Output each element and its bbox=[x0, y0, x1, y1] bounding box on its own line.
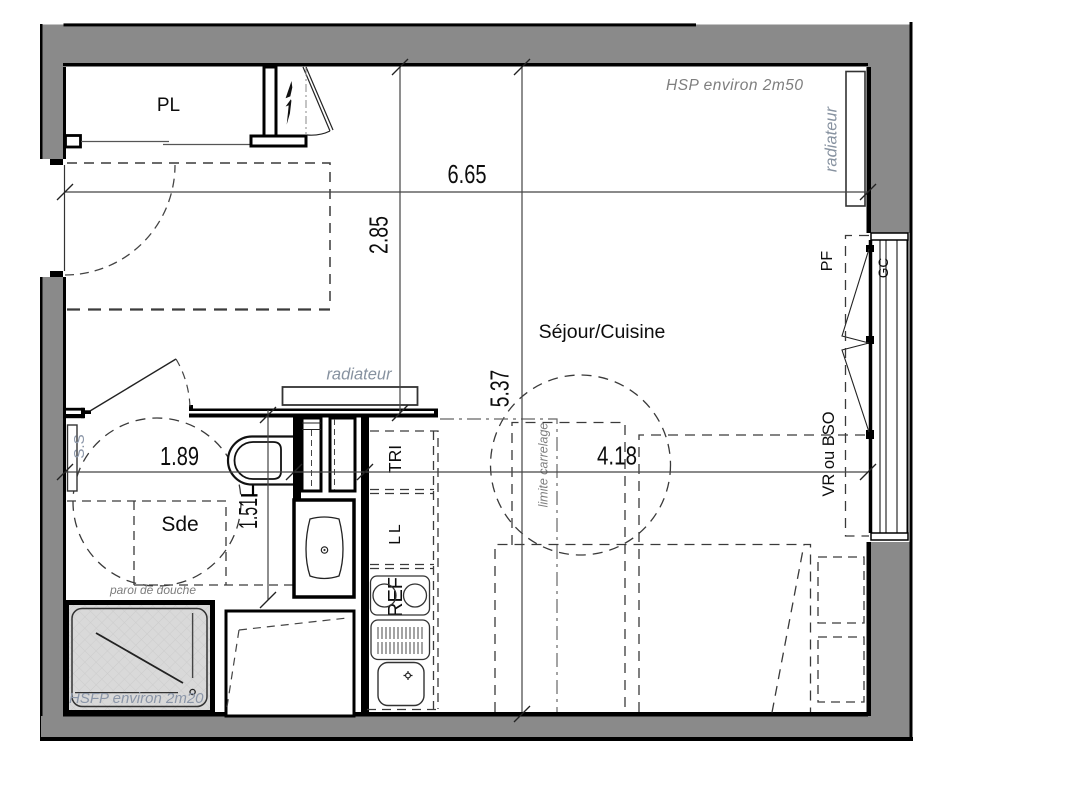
svg-text:HSFP environ 2m20: HSFP environ 2m20 bbox=[69, 690, 204, 707]
svg-text:PF: PF bbox=[819, 251, 836, 272]
svg-text:Séjour/Cuisine: Séjour/Cuisine bbox=[539, 321, 666, 343]
svg-text:LL: LL bbox=[387, 521, 404, 544]
svg-text:S.S: S.S bbox=[71, 434, 88, 458]
svg-text:5.37: 5.37 bbox=[487, 370, 515, 408]
svg-text:6.65: 6.65 bbox=[448, 161, 487, 189]
svg-text:GC: GC bbox=[876, 258, 891, 279]
svg-text:1.89: 1.89 bbox=[160, 443, 199, 471]
svg-text:radiateur: radiateur bbox=[823, 105, 841, 172]
svg-text:2.85: 2.85 bbox=[366, 216, 394, 254]
svg-text:radiateur: radiateur bbox=[326, 366, 393, 384]
svg-text:Sde: Sde bbox=[161, 513, 198, 536]
svg-text:VR ou BSO: VR ou BSO bbox=[820, 411, 838, 496]
svg-text:PL: PL bbox=[157, 95, 180, 116]
svg-text:limite carrelage: limite carrelage bbox=[537, 423, 551, 508]
svg-text:4.18: 4.18 bbox=[597, 443, 637, 471]
svg-text:paroi de douche: paroi de douche bbox=[109, 583, 196, 597]
svg-text:TRI: TRI bbox=[385, 445, 405, 473]
svg-text:HSP environ 2m50: HSP environ 2m50 bbox=[666, 77, 804, 94]
svg-text:1.51: 1.51 bbox=[235, 498, 263, 529]
